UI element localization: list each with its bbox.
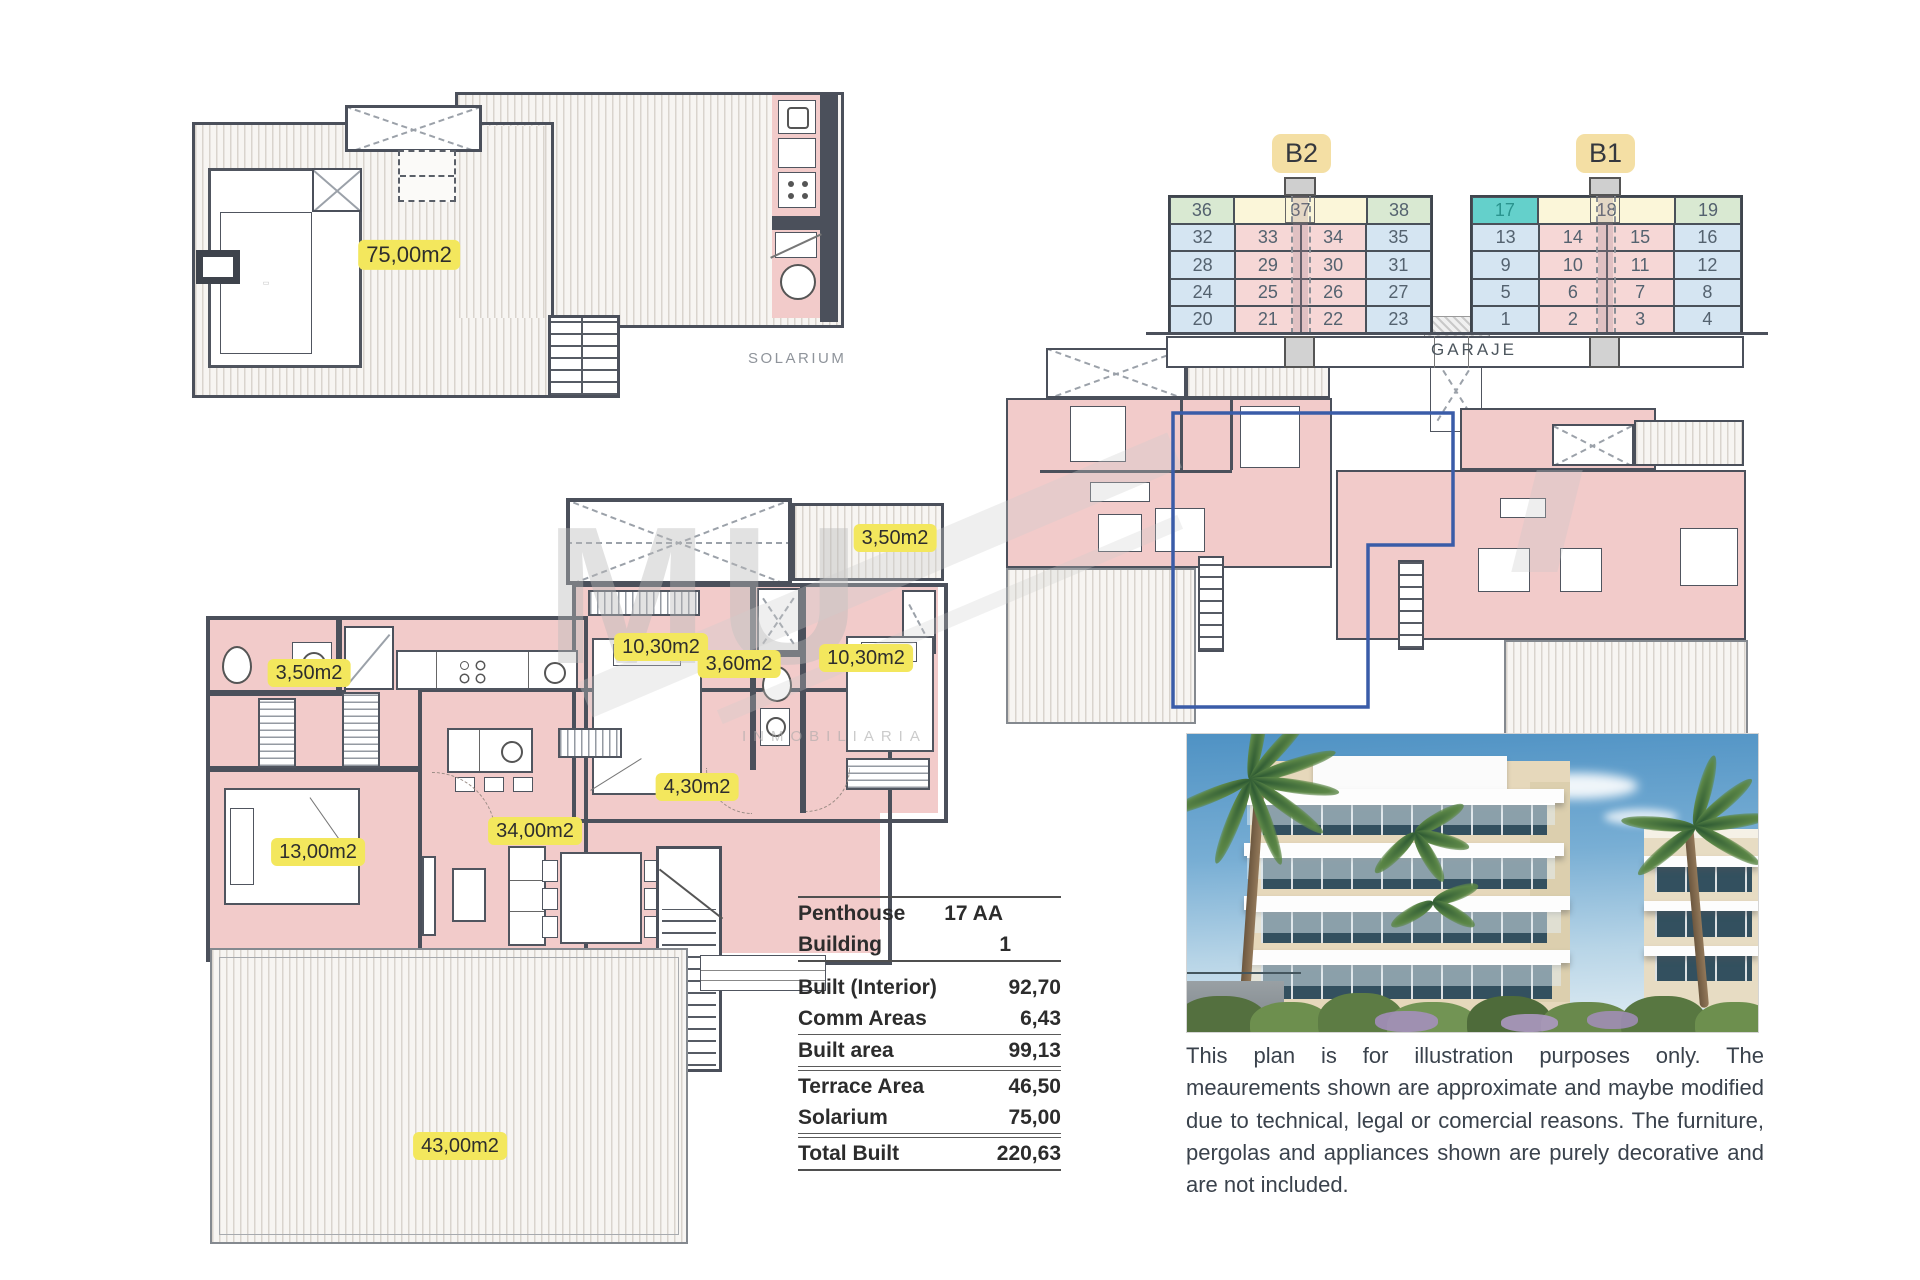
unit-cell: 15 xyxy=(1607,224,1674,251)
row-label: Solarium xyxy=(798,1106,888,1130)
unit-cell: 36 xyxy=(1170,197,1234,224)
lift-footprint xyxy=(1590,197,1620,223)
hall-wardrobe xyxy=(558,728,622,758)
unit-cell: 16 xyxy=(1674,224,1741,251)
hob-burners xyxy=(788,181,794,187)
unit-cell: 35 xyxy=(1366,224,1431,251)
flower-patch xyxy=(1375,1011,1438,1032)
storage-room xyxy=(566,498,792,585)
unit-cell: 31 xyxy=(1366,251,1431,278)
table-row: Solarium 75,00 xyxy=(798,1102,1061,1133)
row-value: 75,00 xyxy=(1008,1106,1061,1130)
row-label: Built (Interior) xyxy=(798,976,937,1000)
wardrobe xyxy=(846,758,930,790)
hob-burners xyxy=(460,661,469,670)
row-value: 46,50 xyxy=(1008,1075,1061,1099)
dashed-fixture xyxy=(398,150,456,202)
pergola xyxy=(345,105,482,152)
selected-unit-outline xyxy=(958,318,1758,743)
table-row: Penthouse 17 AA xyxy=(798,898,1061,929)
row-label: Built area xyxy=(798,1039,894,1063)
unit-cell: 13 xyxy=(1472,224,1539,251)
table-row: Built (Interior) 92,70 xyxy=(798,972,1061,1003)
island-divider xyxy=(479,730,480,771)
row-label: Building xyxy=(798,933,882,957)
shower-line xyxy=(770,233,822,258)
wc-shower xyxy=(775,232,817,258)
bottom-terrace xyxy=(210,948,688,1244)
unit-cell: 19 xyxy=(1675,197,1741,224)
area-label-terrace-top: 3,50m2 xyxy=(854,524,937,552)
glass-railing xyxy=(1247,856,1555,879)
bed-fold-line xyxy=(590,758,641,791)
table-rule xyxy=(798,1169,1061,1171)
kitchen-counter xyxy=(396,650,578,690)
floorplan-document-page: ▭ 75,00m2 SOLARIUM xyxy=(0,0,1920,1280)
stool xyxy=(513,777,533,792)
counter-divider xyxy=(528,652,529,688)
row-value: 1 xyxy=(999,933,1061,957)
chair xyxy=(542,860,558,882)
sink-bowl xyxy=(787,107,809,129)
table-row: Comm Areas 6,43 xyxy=(798,1003,1061,1034)
area-label-bedroom-right: 10,30m2 xyxy=(819,644,913,672)
window-band xyxy=(1655,865,1752,892)
unit-cell: 17 xyxy=(1472,197,1538,224)
area-label-terrace-bottom: 43,00m2 xyxy=(413,1132,507,1160)
solarium-stairs xyxy=(548,315,620,398)
jacuzzi-corner-box xyxy=(312,168,362,212)
sofa-cushion-line xyxy=(510,880,544,881)
window-band xyxy=(1655,910,1752,937)
area-label-bedroom-left: 10,30m2 xyxy=(614,633,708,661)
chair xyxy=(542,916,558,938)
fence-line xyxy=(1187,972,1301,974)
bed-fold-line xyxy=(310,797,343,843)
terrace-rail xyxy=(219,957,679,1235)
table-row: Terrace Area 46,50 xyxy=(798,1071,1061,1102)
building-render-photo xyxy=(1186,733,1759,1033)
area-summary-table: Penthouse 17 AA Building 1 Built (Interi… xyxy=(798,896,1061,1171)
fixture-line xyxy=(400,175,454,177)
unit-cell: 9 xyxy=(1472,251,1539,278)
sofa-cushion-line xyxy=(510,911,544,912)
row-label: Total Built xyxy=(798,1142,899,1166)
row-label: Terrace Area xyxy=(798,1075,924,1099)
kitchen-island xyxy=(447,728,533,773)
balcony-slab xyxy=(1244,950,1569,963)
area-label-bedroom-lower: 13,00m2 xyxy=(271,838,365,866)
storage-mid-line xyxy=(566,542,792,544)
shower-line xyxy=(348,634,391,685)
kitchen-counter xyxy=(778,138,816,168)
wall xyxy=(206,690,346,696)
toilet xyxy=(222,646,252,684)
block-tag-b2: B2 xyxy=(1272,134,1331,173)
dining-table xyxy=(560,852,642,944)
block-tag-b1: B1 xyxy=(1576,134,1635,173)
area-label-bath-left: 3,50m2 xyxy=(268,659,351,687)
unit-cell: 11 xyxy=(1607,251,1674,278)
shower xyxy=(344,626,394,690)
kitchen-sink xyxy=(778,100,816,134)
table-spacer xyxy=(798,962,1061,972)
unit-cell: 28 xyxy=(1170,251,1235,278)
wall xyxy=(820,92,838,322)
flower-patch xyxy=(1587,1011,1638,1029)
coffee-table xyxy=(452,868,486,922)
kitchen-hob xyxy=(778,172,816,208)
disclaimer-text: This plan is for illustration purposes o… xyxy=(1186,1040,1764,1202)
jacuzzi-mark: ▭ xyxy=(263,279,270,287)
wardrobe xyxy=(342,692,380,768)
unit-cell: 12 xyxy=(1674,251,1741,278)
sofa xyxy=(508,846,546,946)
table-row-total: Total Built 220,63 xyxy=(798,1138,1061,1169)
counter-divider xyxy=(436,652,437,688)
sink xyxy=(760,708,790,746)
row-label: Penthouse xyxy=(798,902,905,926)
solarium-caption: SOLARIUM xyxy=(748,350,846,367)
counter-sink xyxy=(544,662,566,684)
row-value: 6,43 xyxy=(1020,1007,1061,1031)
table-row: Building 1 xyxy=(798,929,1061,960)
stool xyxy=(484,777,504,792)
wardrobe xyxy=(258,698,296,768)
solarium-deck-seam xyxy=(459,126,545,318)
unit-cell: 5 xyxy=(1472,279,1539,306)
island-sink xyxy=(501,741,523,763)
penthouse-level xyxy=(1313,756,1507,790)
tv-bench xyxy=(422,856,436,936)
lift-footprint xyxy=(1285,197,1315,223)
row-value: 220,63 xyxy=(997,1142,1061,1166)
area-label-hall: 4,30m2 xyxy=(656,773,739,801)
balcony-slab xyxy=(1644,901,1758,911)
chair xyxy=(542,888,558,910)
area-label-solarium: 75,00m2 xyxy=(358,240,460,270)
vent-box xyxy=(196,250,240,284)
wc-basin xyxy=(780,264,816,300)
unit-cell: 8 xyxy=(1674,279,1741,306)
area-label-bath-mid: 3,60m2 xyxy=(698,650,781,678)
wardrobe xyxy=(588,590,700,616)
flower-patch xyxy=(1501,1014,1558,1032)
row-value: 17 AA xyxy=(944,902,1061,926)
stair-rail xyxy=(581,318,583,395)
wall xyxy=(206,766,420,772)
table-row: Built area 99,13 xyxy=(798,1035,1061,1066)
unit-cell: 27 xyxy=(1366,279,1431,306)
area-label-living: 34,00m2 xyxy=(488,817,582,845)
glass-railing xyxy=(1247,963,1561,986)
lift-shaft-top xyxy=(1284,177,1316,196)
row-value: 92,70 xyxy=(1008,976,1061,1000)
unit-cell: 38 xyxy=(1367,197,1431,224)
row-value: 99,13 xyxy=(1008,1039,1061,1063)
wall xyxy=(772,216,838,230)
pillow xyxy=(230,808,254,885)
unit-cell: 32 xyxy=(1170,224,1235,251)
lift-shaft-top xyxy=(1589,177,1621,196)
unit-cell: 24 xyxy=(1170,279,1235,306)
row-label: Comm Areas xyxy=(798,1007,927,1031)
sink-bowl xyxy=(766,717,786,737)
unit-cell: 7 xyxy=(1607,279,1674,306)
